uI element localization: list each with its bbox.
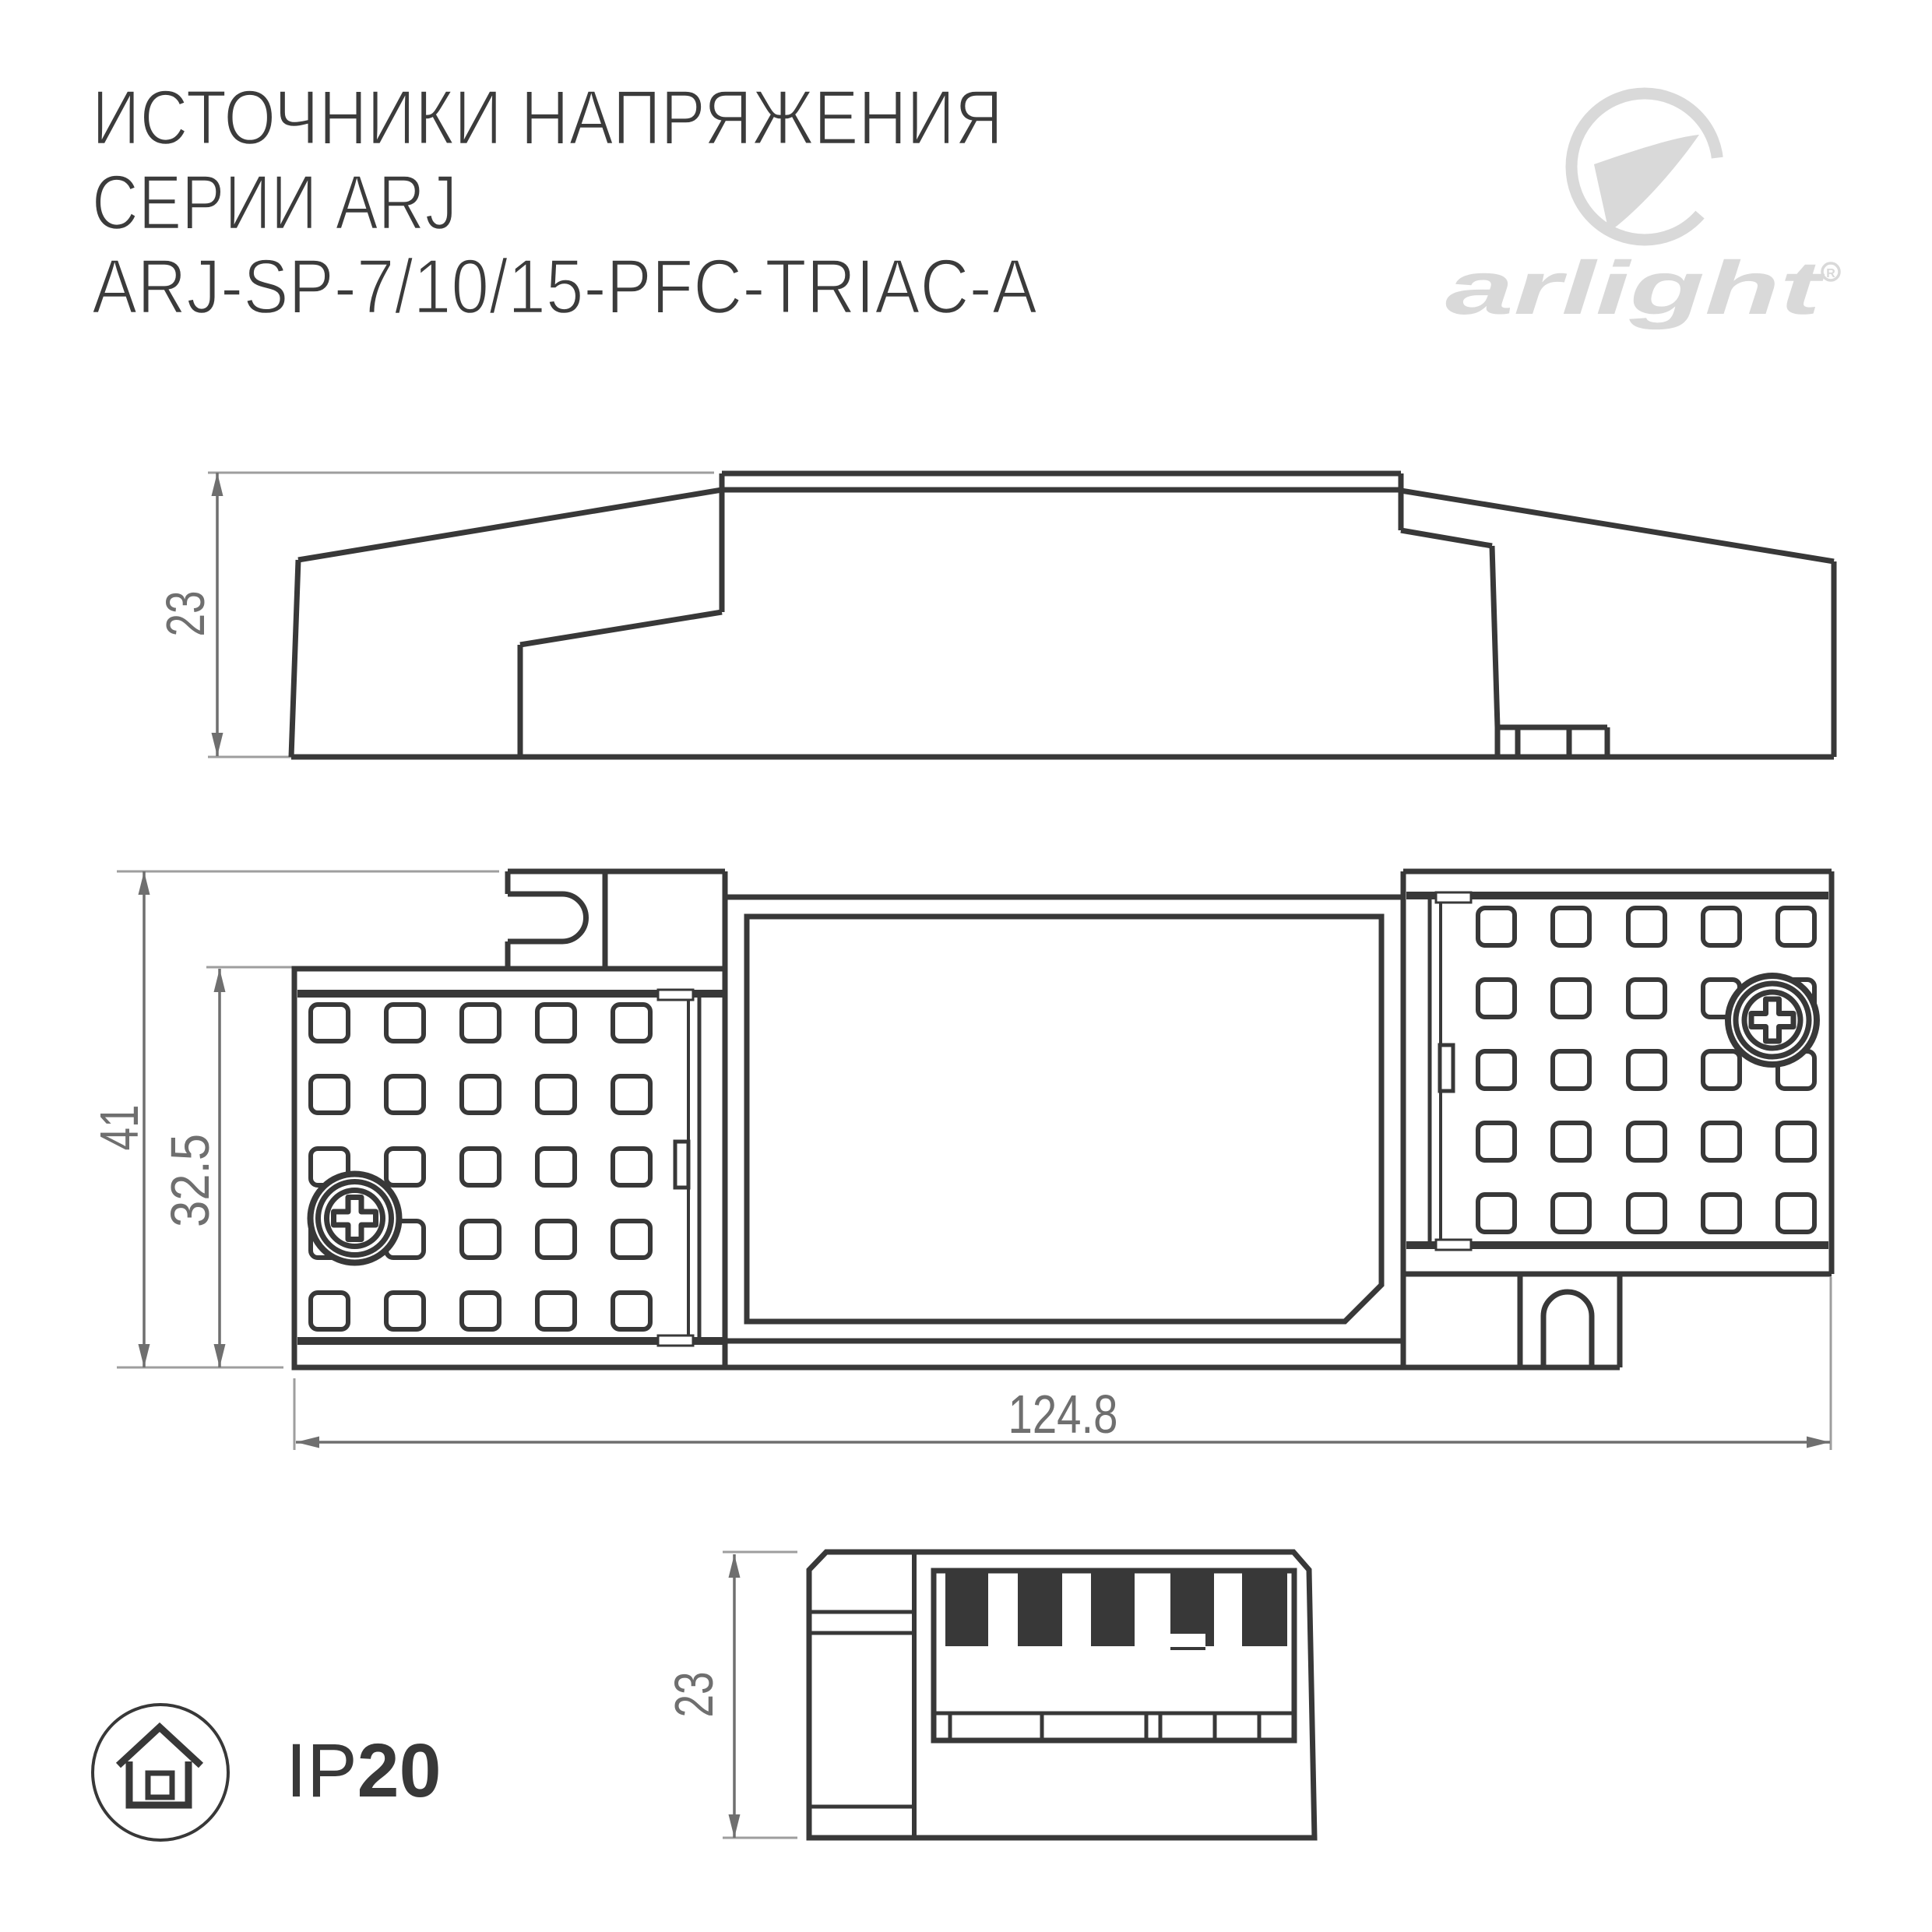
svg-text:23: 23 xyxy=(155,591,216,637)
svg-text:41: 41 xyxy=(89,1105,150,1151)
svg-text:arlight: arlight xyxy=(1445,245,1825,330)
svg-text:СЕРИИ ARJ: СЕРИИ ARJ xyxy=(92,159,457,245)
svg-text:23: 23 xyxy=(663,1672,724,1718)
svg-text:124.8: 124.8 xyxy=(1008,1384,1118,1445)
svg-text:R: R xyxy=(1826,267,1835,280)
svg-text:IP20: IP20 xyxy=(286,1728,442,1813)
svg-text:ИСТОЧНИКИ НАПРЯЖЕНИЯ: ИСТОЧНИКИ НАПРЯЖЕНИЯ xyxy=(92,74,1003,160)
svg-text:32.5: 32.5 xyxy=(160,1134,220,1227)
svg-text:ARJ-SP-7/10/15-PFC-TRIAC-A: ARJ-SP-7/10/15-PFC-TRIAC-A xyxy=(92,243,1037,329)
